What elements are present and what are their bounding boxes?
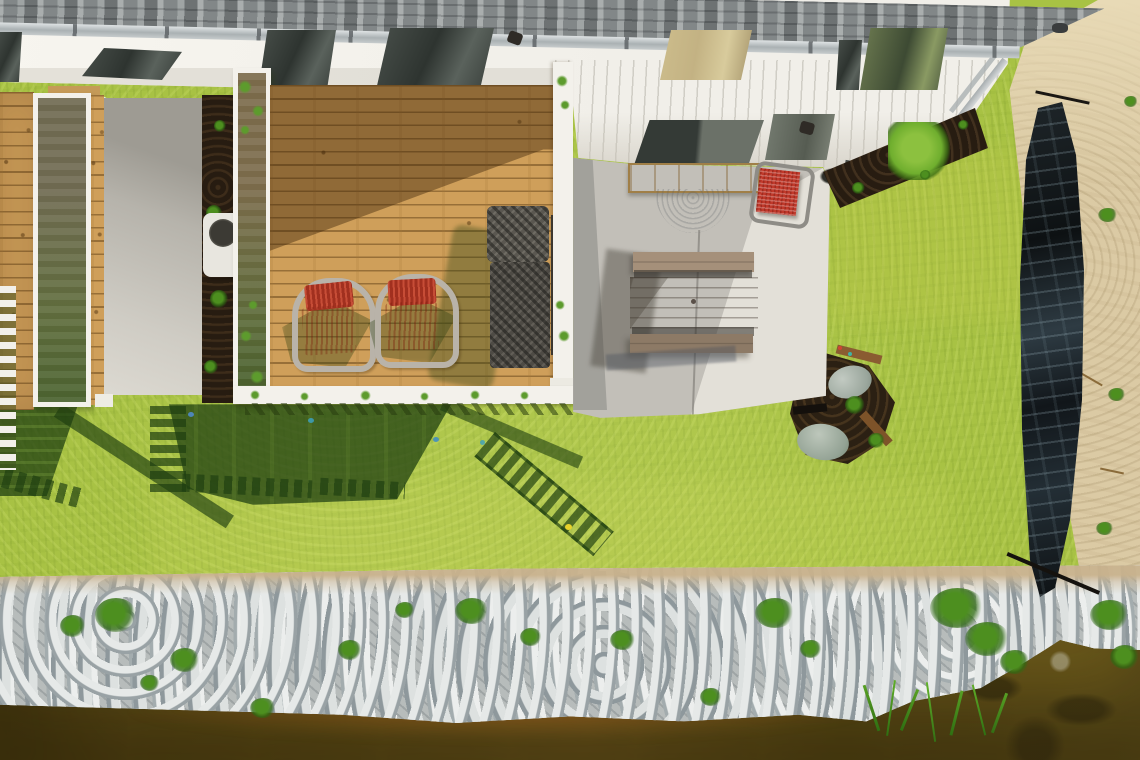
ivy-leaves: [252, 105, 264, 117]
patio-door-window: [634, 120, 764, 165]
ivy-leaves: [558, 330, 570, 342]
lawn-marker-flag: [188, 412, 194, 417]
skylight-window: [376, 28, 494, 90]
rock-weed: [140, 675, 160, 691]
ivy-leaves: [360, 390, 371, 401]
privacy-trellis-mid: [233, 68, 271, 404]
reflective-window: [860, 28, 948, 90]
reed-blade: [863, 685, 881, 732]
rock-weed: [1000, 650, 1030, 674]
mulch-plant: [210, 290, 228, 308]
plant-tuft: [868, 433, 885, 448]
lawn-marker-flag: [308, 418, 314, 423]
rock-weed: [170, 648, 200, 672]
deck-chair-seat: [385, 301, 439, 351]
rock-weed: [1110, 645, 1140, 669]
bistro-chair-seat: [756, 168, 800, 216]
reed-blade: [926, 682, 936, 742]
silt-fence: [1000, 100, 1100, 605]
rock-weed: [930, 588, 985, 628]
aerial-photo: [0, 0, 1140, 760]
rock-weed: [520, 628, 542, 646]
ivy-leaves: [300, 392, 309, 401]
dandelion: [565, 524, 572, 530]
reed-blade: [886, 680, 896, 736]
deck-railing-bottom: [233, 386, 593, 404]
reflective-window: [660, 30, 752, 80]
ivy-leaves: [238, 80, 252, 94]
ivy-leaves: [470, 390, 480, 400]
ivy-leaves: [240, 330, 252, 342]
ivy-leaves: [250, 390, 260, 400]
skylight-window: [836, 40, 862, 90]
silt-fence-sheen: [1000, 100, 1100, 605]
trellis-rung-shadow: [150, 406, 186, 494]
sand-tuft: [1108, 388, 1126, 401]
rock-weed: [60, 615, 86, 637]
chaise-body: [490, 262, 550, 368]
railing-underside-hatch: [245, 403, 575, 415]
deck-railing-right: [553, 62, 573, 404]
rock-weed: [755, 598, 795, 628]
deck-board-strip: [91, 95, 104, 405]
reed-blade: [972, 685, 987, 736]
mulch-plant: [214, 120, 226, 132]
deck-chair-seat: [301, 304, 356, 356]
rock-weed: [250, 698, 276, 718]
bed-plant: [920, 170, 931, 180]
edge-trellis-fragment: [0, 286, 16, 470]
ivy-leaves: [520, 391, 529, 400]
lawn-marker-flag: [480, 440, 485, 445]
flower-dot: [838, 346, 842, 350]
bed-plant: [958, 120, 969, 130]
rock-weed: [395, 602, 415, 618]
downspout-outlet: [1052, 23, 1068, 33]
rock-weed: [455, 598, 489, 624]
railing-post-cap: [95, 394, 113, 407]
mulch-plant: [204, 360, 218, 374]
reeds: [860, 678, 1030, 760]
reed-blade: [900, 689, 919, 731]
ivy-leaves: [556, 75, 568, 87]
umbrella-hole: [691, 299, 696, 304]
privacy-trellis-left: [33, 93, 91, 407]
ivy-leaves: [420, 392, 429, 401]
ivy-leaves: [560, 100, 570, 110]
sand-tuft: [1098, 208, 1118, 222]
rock-weed: [700, 688, 722, 706]
lawn-marker-flag: [433, 437, 439, 442]
sand-tuft: [1124, 96, 1138, 107]
rock-weed: [95, 598, 137, 632]
chaise-headrest: [487, 206, 549, 262]
skylight-window: [0, 32, 22, 82]
ivy-leaves: [248, 300, 258, 310]
picnic-bench-top: [633, 252, 754, 272]
rock-weed: [338, 640, 362, 660]
rock-weed: [800, 640, 822, 658]
ivy-leaves: [240, 125, 250, 135]
shrub: [888, 122, 950, 180]
ivy-leaves: [250, 370, 264, 384]
neighbor-concrete-pad: [104, 98, 202, 395]
plant-tuft: [845, 396, 865, 414]
ivy-leaves: [555, 300, 565, 310]
reed-blade: [991, 693, 1008, 733]
patio-door-window: [765, 114, 835, 160]
rock-weed: [965, 622, 1010, 656]
reed-blade: [949, 690, 963, 735]
bed-plant: [852, 182, 865, 194]
flower-dot: [848, 352, 852, 356]
rock-weed: [610, 630, 636, 650]
